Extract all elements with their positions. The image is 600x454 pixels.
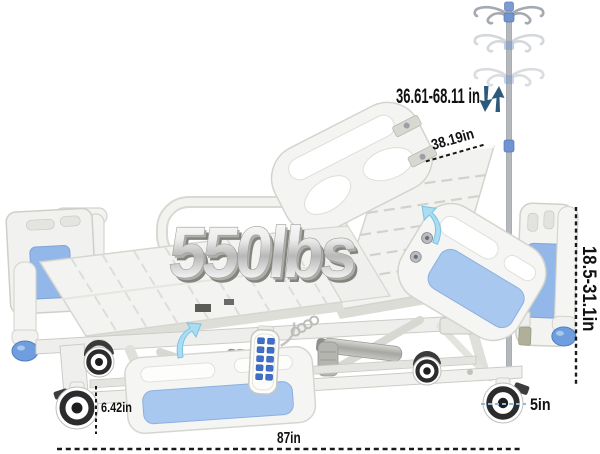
headboard-left-knob bbox=[12, 341, 38, 361]
svg-text:87in: 87in bbox=[277, 428, 301, 446]
caster-wheel-right bbox=[483, 378, 530, 423]
down-arrow-icon bbox=[480, 86, 493, 112]
svg-text:5in: 5in bbox=[530, 396, 551, 414]
caster-size-label: 5in bbox=[530, 396, 551, 414]
weight-capacity-face: 550lbs bbox=[165, 212, 359, 293]
svg-text:36.61-68.11 in: 36.61-68.11 in bbox=[396, 84, 480, 108]
caster-wheel-left-upper bbox=[84, 340, 114, 377]
svg-text:6.42in: 6.42in bbox=[101, 400, 132, 416]
iv-pole-mid-collar bbox=[504, 140, 514, 152]
weight-capacity: 550lbs 550lbs 550lbs bbox=[165, 212, 364, 298]
iv-pole-collar bbox=[504, 13, 514, 22]
footboard bbox=[124, 346, 317, 435]
svg-text:18.5-31.1in: 18.5-31.1in bbox=[579, 246, 600, 331]
bed-diagram-canvas: 550lbs 550lbs 550lbs 36.61-68.11 in 38.1… bbox=[0, 0, 600, 454]
deck-hinge-hardware bbox=[195, 304, 211, 312]
caster-wheel-left-lower bbox=[53, 382, 98, 429]
iv-pole-finial bbox=[505, 2, 514, 11]
length-label: 87in bbox=[277, 428, 301, 446]
iv-pole-height-label: 36.61-68.11 in bbox=[396, 84, 480, 108]
product-image: 550lbs 550lbs 550lbs 36.61-68.11 in 38.1… bbox=[0, 0, 600, 454]
clearance-label: 6.42in bbox=[101, 400, 132, 416]
headboard-right-clamp bbox=[519, 327, 532, 345]
headboard-right-knob bbox=[552, 327, 577, 347]
caster-wheel-mid-right bbox=[413, 351, 441, 385]
height-range-label: 18.5-31.1in bbox=[579, 246, 600, 331]
up-arrow-icon bbox=[492, 86, 505, 112]
